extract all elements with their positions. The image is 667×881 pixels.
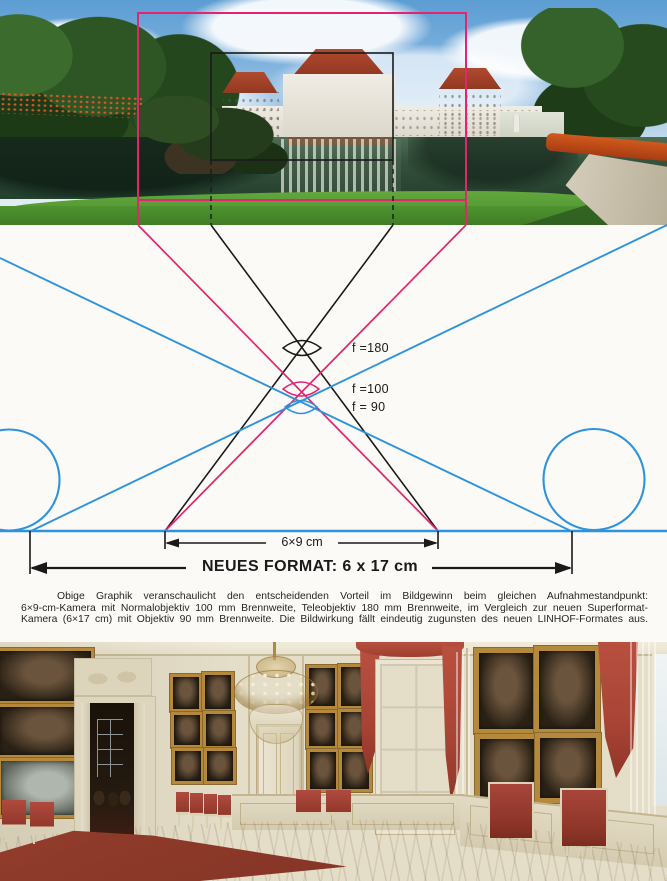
brochure-page: f =180 f =100 f = 90 6×9 cm NEUES FORMAT… xyxy=(0,0,667,881)
door-leaf-right xyxy=(134,703,145,835)
main-block xyxy=(283,74,395,138)
far-room-chairs xyxy=(91,783,131,813)
open-doorway xyxy=(74,696,156,842)
portrait xyxy=(307,749,339,792)
lens-180-icon xyxy=(283,341,321,356)
arrow-6x17-head-left xyxy=(30,562,47,574)
garden-statue xyxy=(514,114,519,132)
chair xyxy=(204,794,217,828)
film-spool-right xyxy=(544,429,645,530)
portrait xyxy=(170,674,202,712)
chair xyxy=(176,792,189,826)
arrow-6x17-head-right xyxy=(555,562,572,574)
portrait xyxy=(202,672,234,712)
caption: Obige Graphik veranschaulicht den entsch… xyxy=(21,591,648,626)
portrait xyxy=(171,712,203,748)
lens-100-icon xyxy=(283,382,319,396)
interior-photo xyxy=(0,642,667,881)
caption-line-2: 6×9-cm-Kamera mit Normalobjektiv 100 mm … xyxy=(21,603,648,615)
armchair xyxy=(488,782,534,838)
pilaster xyxy=(466,648,468,798)
portrait xyxy=(204,748,236,784)
ray-tele xyxy=(165,225,438,531)
chair xyxy=(296,790,321,828)
sheer-curtain xyxy=(630,642,656,832)
overdoor-relief xyxy=(74,658,152,696)
chair xyxy=(326,790,351,828)
caption-line-1: Obige Graphik veranschaulicht den entsch… xyxy=(21,591,648,603)
exterior-photo xyxy=(0,0,667,225)
portrait xyxy=(534,646,600,734)
chair xyxy=(218,795,231,829)
arrow-6x9-head-right xyxy=(424,539,438,548)
label-f180: f =180 xyxy=(352,341,389,355)
door-leaf-left xyxy=(81,703,90,835)
palace-reflection xyxy=(281,139,401,195)
lens-90-icon xyxy=(285,401,317,414)
ray-normal xyxy=(138,225,466,531)
label-f90: f = 90 xyxy=(352,400,385,414)
film-spool-left xyxy=(0,430,60,531)
right-pavilion xyxy=(439,88,501,138)
label-format-6x9: 6×9 cm xyxy=(262,535,342,549)
ray-superformat xyxy=(0,225,667,531)
portrait xyxy=(172,748,204,784)
armchair xyxy=(560,788,608,846)
chandelier-crystal-bag xyxy=(249,704,303,744)
label-f100: f =100 xyxy=(352,382,389,396)
chair xyxy=(30,802,54,844)
arrow-6x9-head-left xyxy=(165,539,179,548)
chair xyxy=(190,793,203,827)
chandelier xyxy=(231,642,319,746)
rock-island xyxy=(128,96,290,174)
label-format-6x17: NEUES FORMAT: 6 x 17 cm xyxy=(183,558,437,576)
portrait xyxy=(474,648,538,734)
chair xyxy=(2,800,26,842)
caption-line-3: Kamera (6×17 cm) mit Objektiv 90 mm Bren… xyxy=(21,614,648,626)
far-room-window xyxy=(97,719,123,777)
